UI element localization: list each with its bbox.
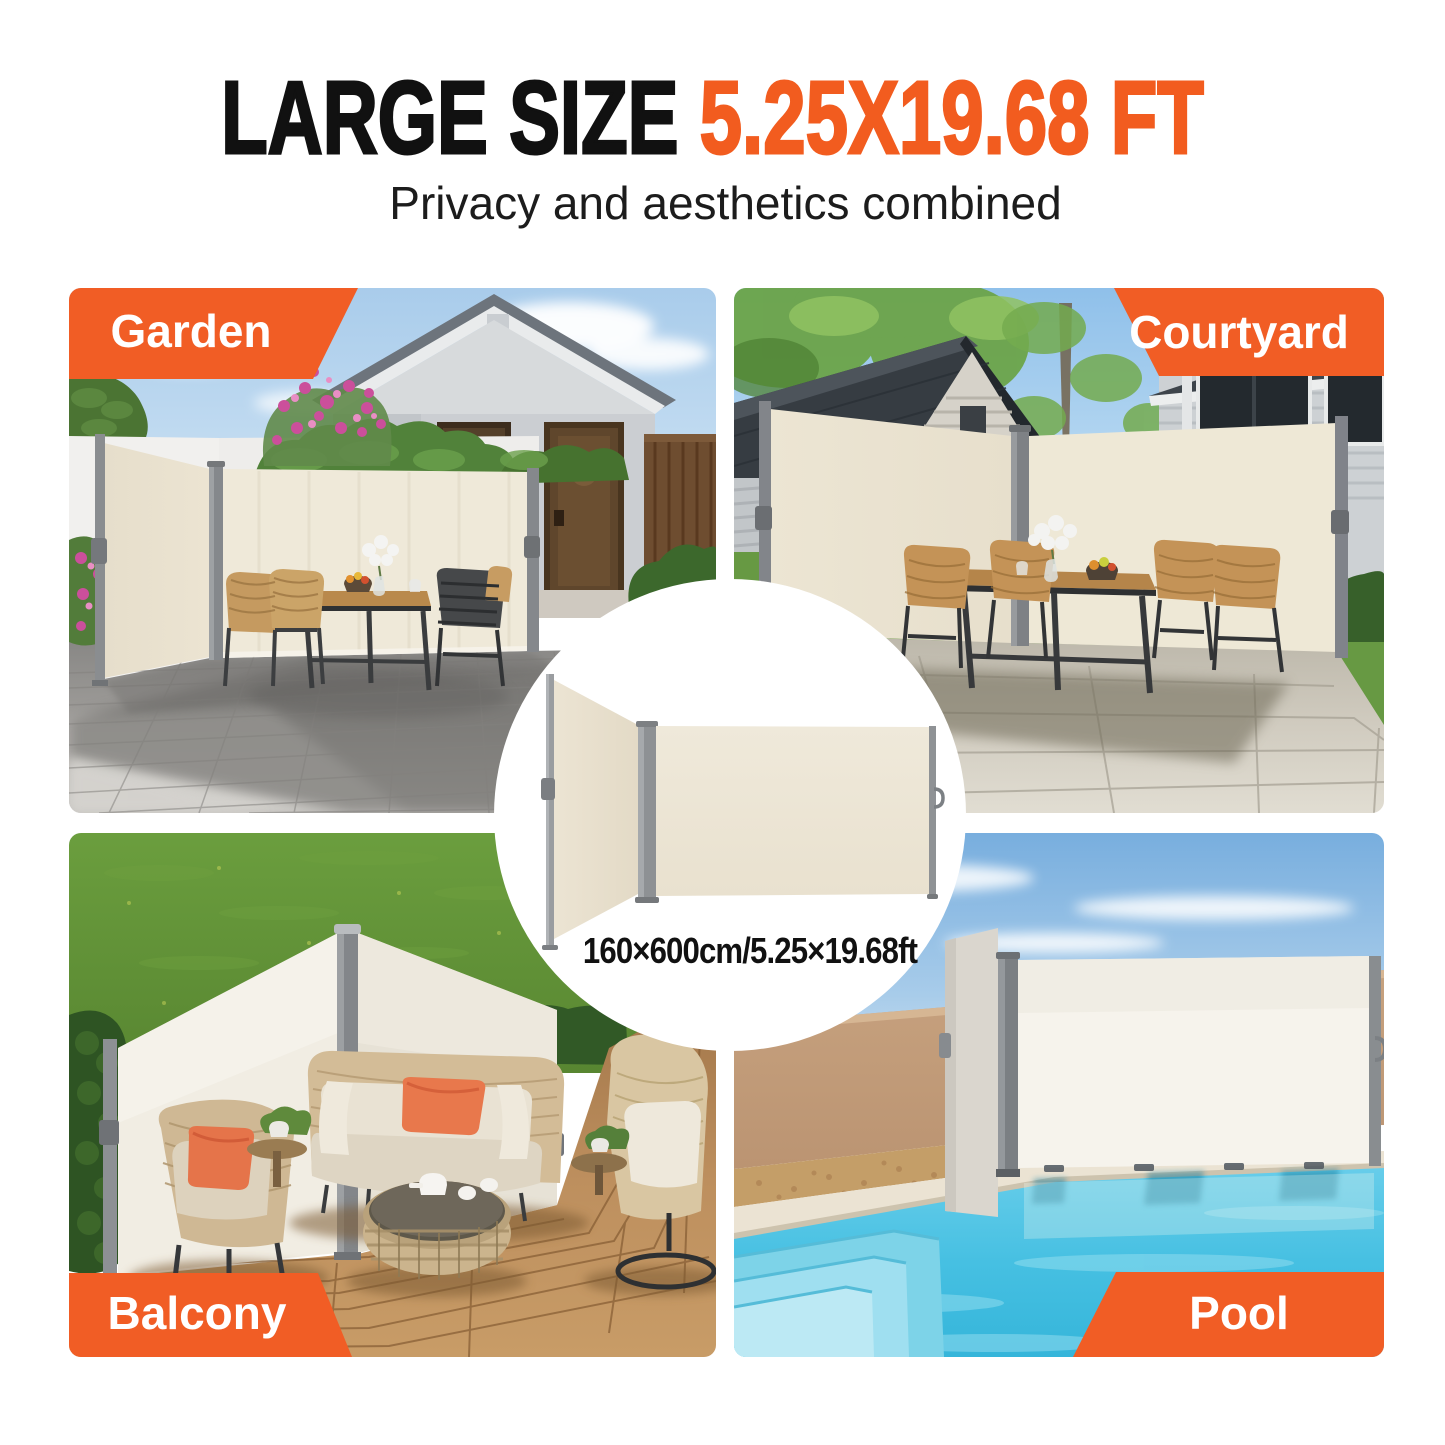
svg-text:Pool: Pool <box>1189 1287 1289 1339</box>
svg-text:Balcony: Balcony <box>108 1287 287 1339</box>
svg-text:Garden: Garden <box>110 305 271 357</box>
svg-text:Courtyard: Courtyard <box>1129 306 1349 358</box>
